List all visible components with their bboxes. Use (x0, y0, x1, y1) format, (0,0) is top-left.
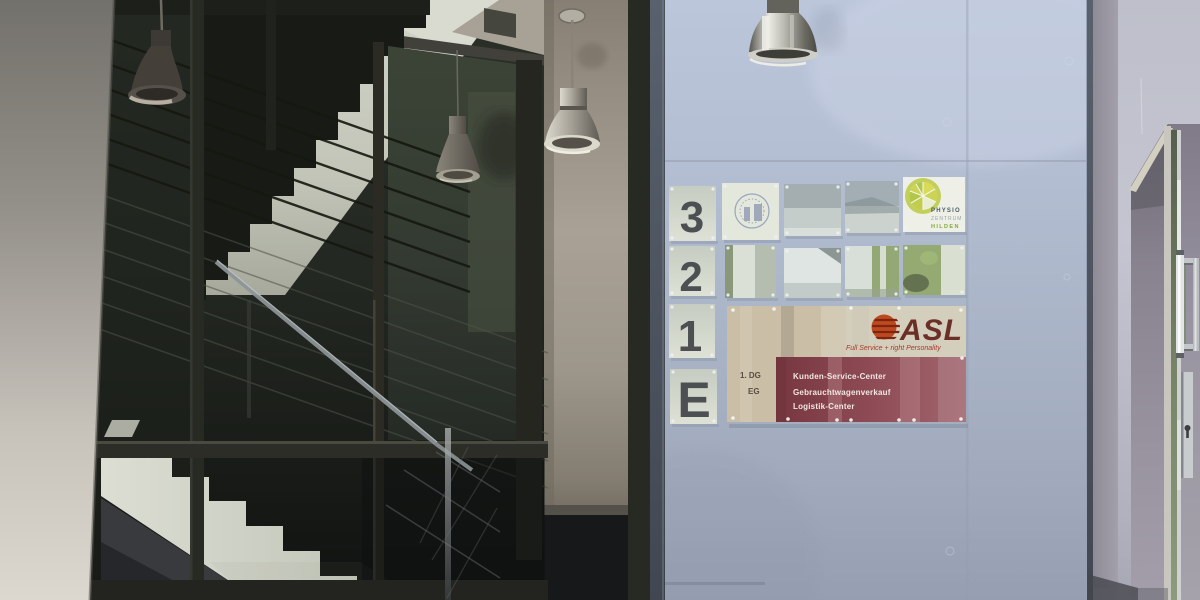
svg-text:Logistik-Center: Logistik-Center (793, 402, 855, 411)
svg-text:Kunden-Service-Center: Kunden-Service-Center (793, 372, 886, 381)
svg-text:Full Service + right Personali: Full Service + right Personality (846, 345, 941, 352)
svg-text:E: E (677, 372, 710, 428)
svg-text:HILDEN: HILDEN (931, 224, 960, 230)
svg-text:2: 2 (679, 253, 702, 300)
svg-text:EG: EG (748, 387, 760, 396)
svg-text:PHYSIO: PHYSIO (931, 208, 961, 214)
svg-text:ASL: ASL (899, 314, 963, 347)
svg-text:3: 3 (680, 193, 704, 242)
svg-text:1: 1 (678, 312, 702, 361)
svg-text:ZENTRUM: ZENTRUM (931, 216, 962, 222)
svg-text:Gebrauchtwagenverkauf: Gebrauchtwagenverkauf (793, 388, 891, 397)
svg-text:1. DG: 1. DG (740, 371, 761, 380)
